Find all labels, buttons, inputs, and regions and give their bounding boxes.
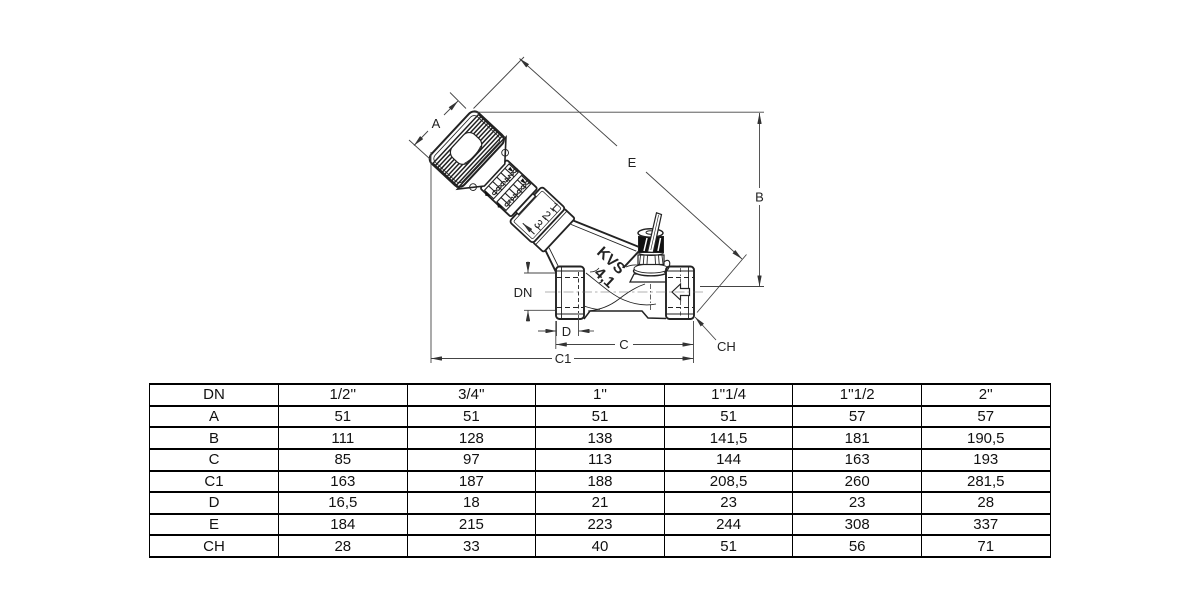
svg-text:C1: C1: [555, 351, 572, 366]
svg-text:DN: DN: [514, 285, 533, 300]
svg-text:D: D: [562, 324, 571, 339]
svg-text:CH: CH: [717, 339, 736, 354]
svg-text:B: B: [755, 190, 764, 205]
svg-text:C: C: [619, 337, 628, 352]
svg-text:A: A: [432, 116, 441, 131]
svg-text:E: E: [628, 155, 637, 170]
